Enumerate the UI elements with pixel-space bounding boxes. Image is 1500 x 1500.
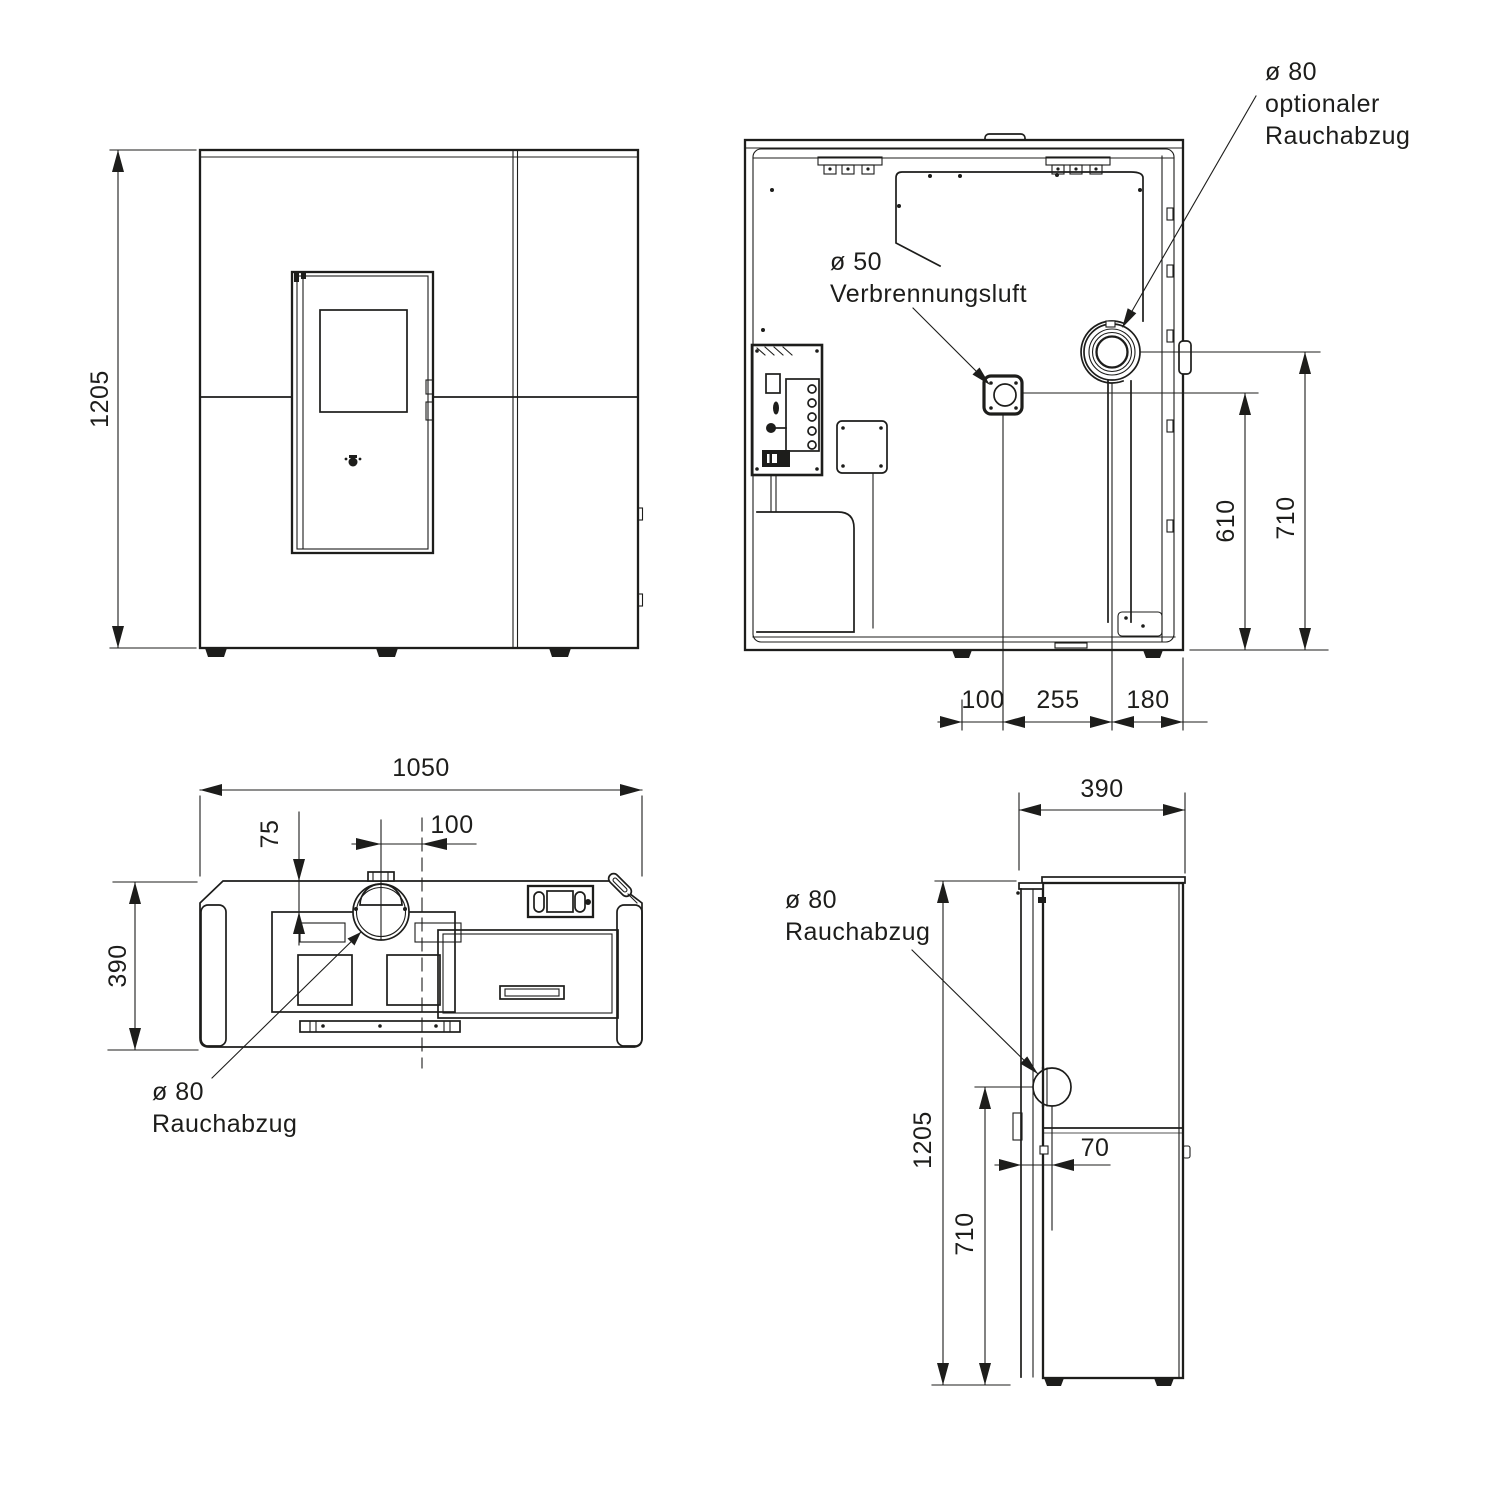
side-body — [1013, 877, 1190, 1386]
optional-flue-line2-label: optionaler — [1265, 90, 1380, 118]
flue-top-diameter-label: ø 80 — [152, 1078, 204, 1106]
flue-side-name-label: Rauchabzug — [785, 918, 930, 946]
dim-side-height-label: 1205 — [909, 1111, 937, 1169]
flue-top-name-label: Rauchabzug — [152, 1110, 297, 1138]
dim-flue-to-edge-label: 180 — [1126, 686, 1169, 714]
dim-top-width: 1050 — [200, 754, 642, 876]
top-view: 1050 75 100 390 ø 80 Rauchabzug — [104, 754, 642, 1138]
dim-top-depth-label: 390 — [104, 944, 132, 987]
label-flue-side: ø 80 Rauchabzug — [785, 886, 1038, 1074]
back-body — [745, 134, 1191, 658]
dim-side-depth: 390 — [1019, 775, 1185, 873]
front-view: 1205 — [86, 150, 643, 657]
dim-flue-height-label: 710 — [1272, 496, 1300, 539]
dim-side-height: 1205 — [909, 881, 1016, 1385]
side-bracket — [1179, 341, 1191, 374]
optional-flue-diameter-label: ø 80 — [1265, 58, 1317, 86]
dim-air-height-label: 610 — [1212, 499, 1240, 542]
dim-air-to-flue-label: 255 — [1036, 686, 1079, 714]
drawing-canvas: 1205 — [0, 0, 1500, 1500]
dim-side-flue-offset-label: 70 — [1081, 1134, 1110, 1162]
side-view: 390 1205 710 70 ø 80 Rauchabzug — [785, 775, 1190, 1386]
dim-center-to-air-label: 100 — [961, 686, 1004, 714]
flue-side-diameter-label: ø 80 — [785, 886, 837, 914]
dim-top-flue-center-offset: 100 — [352, 811, 476, 850]
dim-top-width-label: 1050 — [392, 754, 450, 782]
air-inlet-name-label: Verbrennungsluft — [830, 280, 1027, 308]
back-view: ø 50 Verbrennungsluft ø 80 optionaler Ra… — [745, 58, 1410, 730]
dim-flue-back-offset-label: 75 — [256, 820, 284, 849]
dim-side-flue-height-label: 710 — [951, 1212, 979, 1255]
dim-front-height: 1205 — [86, 150, 196, 648]
dim-top-depth: 390 — [104, 882, 198, 1050]
dim-side-depth-label: 390 — [1080, 775, 1123, 803]
flue-outlet-side — [975, 1068, 1071, 1106]
dim-front-height-label: 1205 — [86, 370, 114, 428]
dim-flue-center-offset-label: 100 — [430, 811, 473, 839]
air-inlet-diameter-label: ø 50 — [830, 248, 882, 276]
front-body — [200, 150, 643, 657]
dim-side-flue-height: 710 — [951, 1087, 991, 1385]
optional-flue-line3-label: Rauchabzug — [1265, 122, 1410, 150]
technical-drawing: 1205 — [0, 0, 1500, 1500]
